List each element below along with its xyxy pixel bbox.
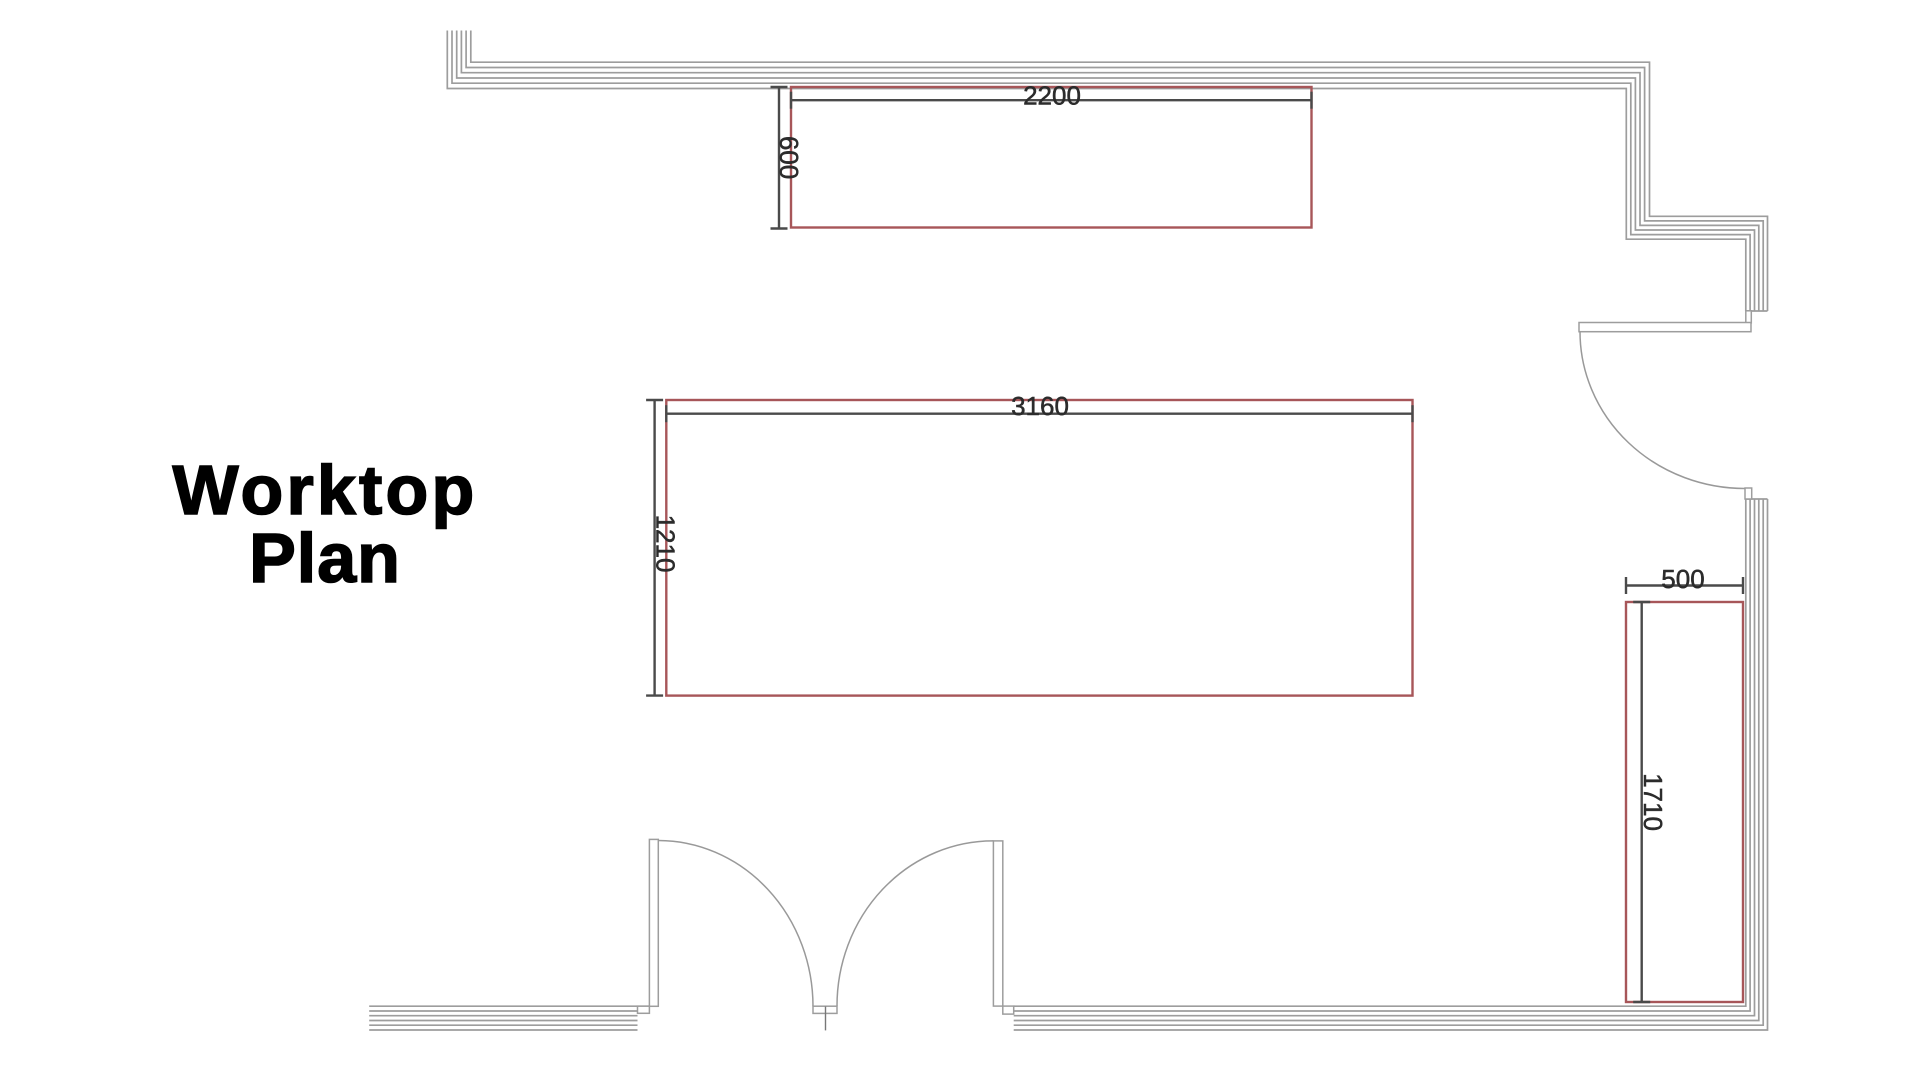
svg-text:600: 600 [774, 136, 804, 179]
svg-text:Worktop: Worktop [173, 451, 478, 529]
svg-text:2200: 2200 [1023, 81, 1081, 111]
svg-text:500: 500 [1661, 564, 1704, 594]
svg-text:1210: 1210 [651, 515, 681, 573]
svg-text:3160: 3160 [1011, 391, 1069, 421]
svg-text:Plan: Plan [249, 519, 401, 597]
svg-text:1710: 1710 [1638, 773, 1668, 831]
